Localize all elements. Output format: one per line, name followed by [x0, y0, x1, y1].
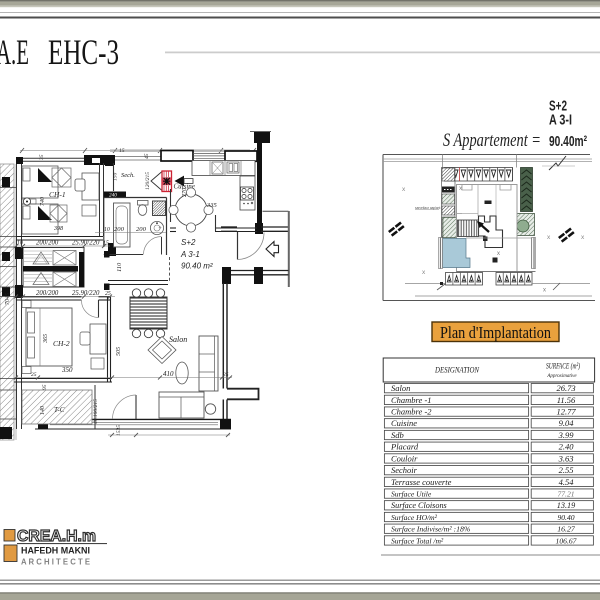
svg-text:Chambre -1: Chambre -1 — [391, 395, 432, 405]
svg-text:10: 10 — [17, 241, 23, 247]
svg-text:CH-2: CH-2 — [53, 339, 70, 348]
svg-text:365: 365 — [43, 334, 49, 344]
svg-text:CH-1: CH-1 — [49, 190, 66, 199]
svg-text:2.40: 2.40 — [559, 442, 575, 452]
svg-text:Surface Total /m²: Surface Total /m² — [391, 536, 444, 545]
svg-text:Surface Indivise/m² :18%: Surface Indivise/m² :18% — [391, 525, 471, 534]
svg-text:15: 15 — [119, 148, 125, 154]
svg-text:S Appartement =: S Appartement = — [443, 131, 541, 151]
svg-text:CREA.H.m: CREA.H.m — [17, 528, 96, 545]
svg-text:Sdb: Sdb — [391, 430, 404, 440]
svg-text:140: 140 — [39, 406, 46, 415]
svg-text:A 3-1: A 3-1 — [180, 250, 200, 259]
svg-text:HAFEDH MAKNI: HAFEDH MAKNI — [21, 546, 90, 556]
svg-text:40.100/215: 40.100/215 — [92, 399, 99, 424]
svg-text:sarvetlaur aaplant: sarvetlaur aaplant — [415, 206, 440, 210]
svg-text:200: 200 — [114, 226, 125, 233]
svg-text:11.56: 11.56 — [557, 395, 576, 405]
svg-text:200/200: 200/200 — [36, 240, 59, 247]
svg-text:Couloir: Couloir — [391, 453, 418, 463]
svg-text:26.73: 26.73 — [556, 383, 575, 393]
svg-text:95: 95 — [42, 384, 48, 390]
svg-text:Placard: Placard — [390, 442, 419, 452]
svg-text:410: 410 — [163, 370, 174, 378]
svg-text:T-C: T-C — [54, 406, 65, 414]
svg-text:x: x — [402, 186, 406, 193]
svg-text:12.77: 12.77 — [556, 406, 576, 416]
svg-text:25.90/220: 25.90/220 — [72, 240, 100, 247]
svg-text:77.21: 77.21 — [557, 489, 574, 498]
svg-text:Surface Utile: Surface Utile — [391, 489, 432, 498]
svg-text:x: x — [497, 251, 500, 257]
svg-text:Approximative: Approximative — [546, 374, 577, 379]
svg-text:200: 200 — [136, 226, 147, 233]
svg-text:A R C H I T E C T E: A R C H I T E C T E — [21, 557, 90, 567]
svg-text:505: 505 — [116, 347, 122, 356]
svg-text:3.63: 3.63 — [558, 453, 574, 463]
svg-text:4.54: 4.54 — [559, 477, 575, 487]
svg-text:A 3-I: A 3-I — [549, 112, 572, 129]
svg-text:35: 35 — [39, 154, 45, 161]
svg-text:120/215: 120/215 — [145, 172, 151, 190]
svg-text:25: 25 — [31, 372, 37, 378]
svg-text:Plan d'Implantation: Plan d'Implantation — [440, 323, 551, 342]
svg-text:90.40 m²: 90.40 m² — [181, 262, 213, 271]
svg-text:398: 398 — [53, 226, 63, 232]
svg-text:A.E: A.E — [0, 32, 29, 72]
svg-text:45: 45 — [143, 153, 150, 159]
svg-text:x: x — [581, 234, 585, 241]
svg-text:740: 740 — [39, 197, 46, 206]
svg-text:DESIGNATION: DESIGNATION — [434, 365, 480, 375]
svg-text:2.55: 2.55 — [559, 465, 574, 475]
svg-text:Chambre -2: Chambre -2 — [391, 406, 432, 416]
svg-text:270: 270 — [182, 188, 188, 197]
svg-text:x: x — [543, 288, 546, 294]
svg-text:x: x — [547, 234, 551, 241]
svg-text:10: 10 — [104, 227, 110, 233]
svg-text:106.67: 106.67 — [556, 536, 578, 545]
svg-text:9.04: 9.04 — [559, 418, 575, 428]
svg-text:90.40m²: 90.40m² — [549, 133, 587, 150]
svg-text:13.19: 13.19 — [557, 501, 575, 510]
svg-text:x: x — [422, 269, 426, 276]
svg-text:1535: 1535 — [116, 425, 122, 436]
svg-text:EHC-3: EHC-3 — [48, 32, 119, 72]
svg-text:S+2: S+2 — [181, 238, 196, 247]
svg-text:+: + — [158, 226, 162, 232]
svg-text:Sech.: Sech. — [121, 172, 135, 179]
svg-text:Sechoir: Sechoir — [391, 465, 418, 475]
svg-text:3.99: 3.99 — [558, 430, 575, 440]
svg-text:SURFACE (m²): SURFACE (m²) — [546, 361, 580, 371]
svg-text:Surface HO/m²: Surface HO/m² — [391, 513, 438, 522]
svg-text:335: 335 — [206, 202, 218, 209]
svg-text:150: 150 — [113, 173, 119, 182]
svg-text:Surface Cloisons: Surface Cloisons — [391, 501, 447, 510]
svg-text:7045: 7045 — [4, 293, 11, 305]
svg-text:200/200: 200/200 — [36, 290, 59, 297]
svg-text:110: 110 — [116, 262, 123, 272]
svg-text:25.90/220: 25.90/220 — [72, 290, 100, 297]
svg-text:16.27: 16.27 — [557, 525, 576, 534]
svg-text:Cuisine: Cuisine — [391, 418, 417, 428]
svg-text:Salon: Salon — [169, 335, 187, 344]
svg-text:90.40: 90.40 — [557, 513, 574, 522]
svg-text:25: 25 — [223, 372, 229, 378]
svg-text:Salon: Salon — [391, 383, 410, 393]
svg-text:350: 350 — [61, 366, 73, 374]
svg-text:Terrasse couverte: Terrasse couverte — [391, 477, 452, 487]
